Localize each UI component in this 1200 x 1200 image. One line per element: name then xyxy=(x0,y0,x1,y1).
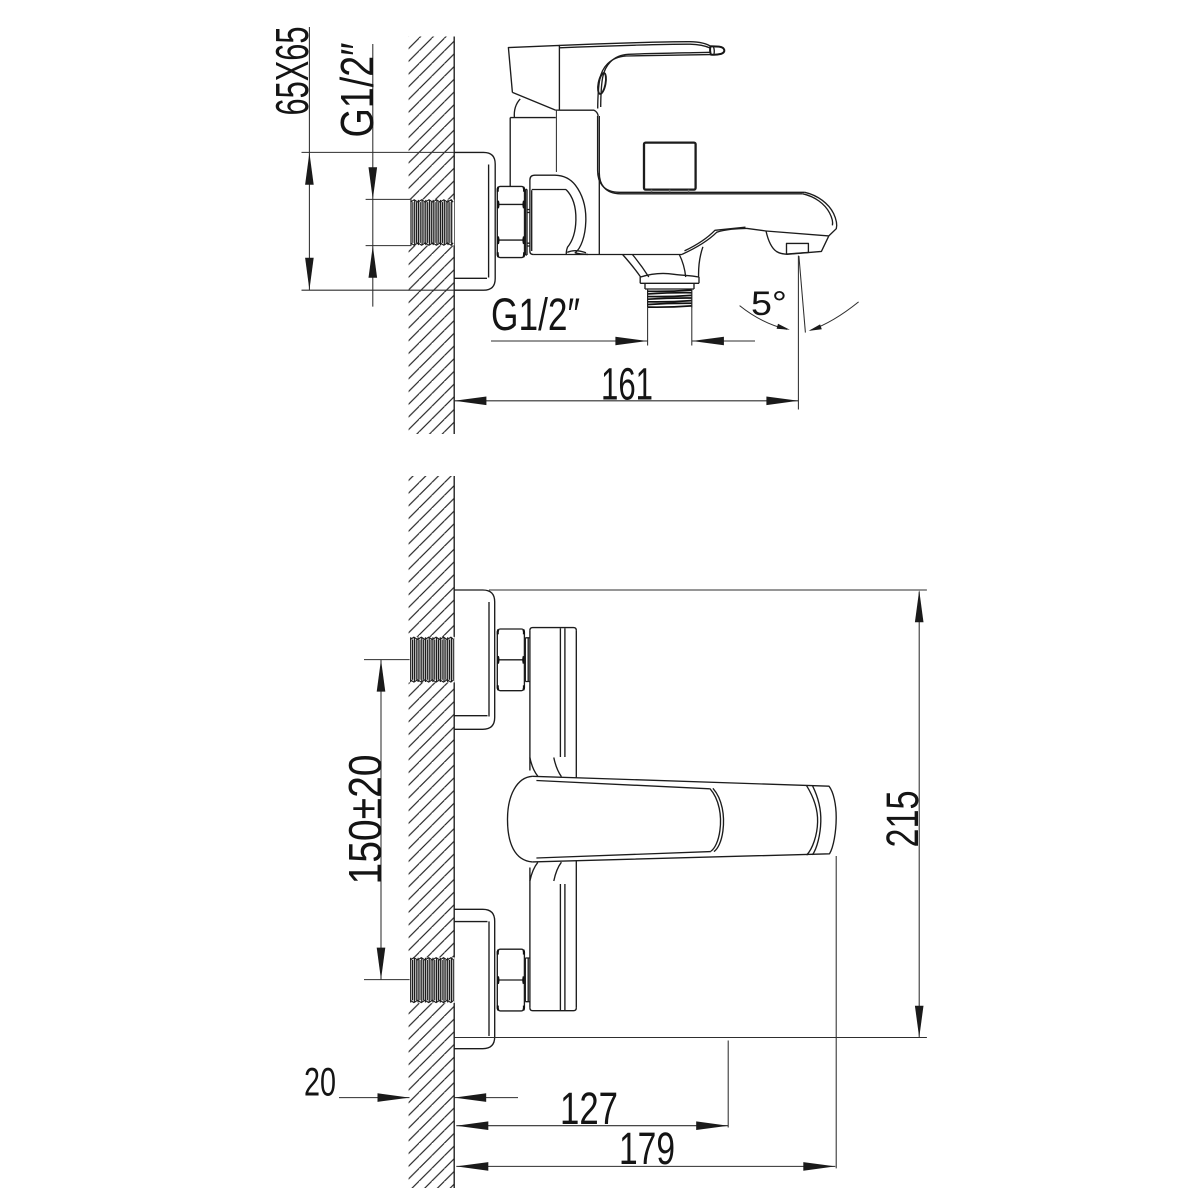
svg-text:G1/2″: G1/2″ xyxy=(331,43,383,138)
svg-text:179: 179 xyxy=(619,1123,675,1174)
svg-text:150±20: 150±20 xyxy=(339,755,391,885)
svg-text:20: 20 xyxy=(304,1061,336,1105)
svg-text:5°: 5° xyxy=(751,285,787,323)
svg-text:161: 161 xyxy=(601,358,653,409)
svg-text:G1/2″: G1/2″ xyxy=(491,289,580,340)
svg-text:65X65: 65X65 xyxy=(266,27,318,116)
svg-text:215: 215 xyxy=(877,791,928,848)
svg-text:127: 127 xyxy=(560,1083,618,1134)
